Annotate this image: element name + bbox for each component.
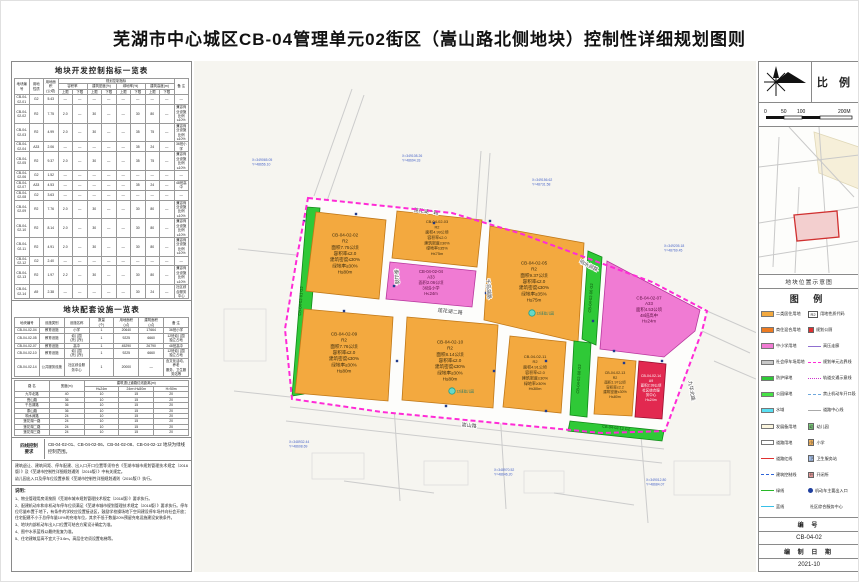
table-cell: R2 xyxy=(29,105,44,124)
coordinate-label: Y=48769.45 xyxy=(664,248,682,252)
legend-swatch-icon-icon: 开 xyxy=(808,472,815,479)
table-cell: 30 xyxy=(131,237,146,256)
legend-label: 绿线 xyxy=(776,488,784,494)
table-cell: 7.75 xyxy=(44,105,59,124)
table-cell: — xyxy=(160,219,175,238)
coordinate-label: X=349205.18 xyxy=(664,244,684,248)
table-cell: 35 xyxy=(131,180,146,190)
table-cell: — xyxy=(174,171,189,181)
legend-swatch-code-icon: R2 xyxy=(808,311,818,318)
table-row: CB-04-02-08G23.63————————— xyxy=(15,190,189,200)
table-cell: 20000 xyxy=(114,358,139,377)
note-line: 5、住宅建筑层高不宜大于3.6m，高层住宅须设置电梯等。 xyxy=(15,536,188,542)
legend-label: 规划单元边界线 xyxy=(823,359,852,365)
table-cell: 4.91 xyxy=(44,237,59,256)
legend-label: 卫生服务站 xyxy=(816,456,836,462)
table-cell: — xyxy=(116,237,131,256)
legend-item: 开开闭所 xyxy=(808,467,857,483)
table-cell: CB-04-02-04 xyxy=(15,142,30,152)
four-lines-section: 四线控制 要求 CB-04-02-01、CB-04-02-06、CB-04-02… xyxy=(12,438,191,461)
kindergarten-marker-icon xyxy=(449,388,455,394)
table-cell: — xyxy=(102,171,117,181)
indicator-table: 地块编号用地 性质用地面积 (公顷)规划控制指标备 注容积率建筑密度(%)绿地率… xyxy=(14,78,189,299)
table-cell: 35 xyxy=(131,142,146,152)
table-cell: 24 xyxy=(145,285,160,299)
scale-bar: 0 50 100 200M xyxy=(762,106,856,124)
coordinate-label: Y=48694.33 xyxy=(402,158,420,162)
table-cell: — xyxy=(73,266,88,285)
legend-item: 道路中心线 xyxy=(808,402,857,418)
table-cell: 含文化活动、养老 服务、卫生服务站等 xyxy=(164,358,189,377)
sheet-number-label: 编 号 xyxy=(759,518,859,531)
table-cell: 30 xyxy=(87,200,102,219)
table-cell: 1 xyxy=(89,333,114,343)
table-cell: R2 xyxy=(29,152,44,171)
table-cell: G2 xyxy=(29,171,44,181)
table-cell: CB-04-02-14 xyxy=(15,358,40,377)
table-cell: 30 xyxy=(131,219,146,238)
table-cell: CB-04-02-07 xyxy=(15,343,40,348)
legend-item: 规划公厕 xyxy=(808,322,857,338)
note-line: 幼儿园出入口及停车位设置参照《芜湖市控制性详细规划通则（2016版）》执行。 xyxy=(15,476,188,482)
table-cell: — xyxy=(73,123,88,142)
table-cell: — xyxy=(58,95,73,105)
indicator-table-title: 地块开发控制指标一览表 xyxy=(14,65,189,76)
table-cell: 80 xyxy=(145,237,160,256)
table-cell: — xyxy=(102,123,117,142)
table-cell: 12班幼儿园 独立占地 xyxy=(164,348,189,358)
table-row: CB-04-02-10R28.142.0—30——3080—兼容商业设施比例≤1… xyxy=(15,219,189,238)
table-cell: 8.14 xyxy=(44,219,59,238)
table-cell: — xyxy=(102,256,117,266)
table-cell: — xyxy=(102,285,117,299)
table-cell: 80 xyxy=(145,200,160,219)
table-cell: CB-04-02-04 xyxy=(15,328,40,333)
table-row: CB-04-02-03R24.992.0—30——3575—兼容商业设施比例≤1… xyxy=(15,123,189,142)
legend-swatch-fill-icon xyxy=(761,360,774,366)
scale-bar-box: 0 50 100 200M xyxy=(758,103,859,127)
svg-text:100: 100 xyxy=(797,109,806,115)
road-access-tick xyxy=(489,220,491,222)
table-cell: — xyxy=(73,237,88,256)
note-line: 3、地块内部机动车出入口位置可结合方案设计确定为准。 xyxy=(15,522,188,528)
table-cell: 兼容商业设施比例≤10% xyxy=(174,152,189,171)
table-cell: — xyxy=(116,152,131,171)
facility-table: 地块编号设施类别设施名称数量 (个)用地面积 (㎡)建筑面积 (㎡)备 注CB-… xyxy=(14,317,189,377)
table-cell: 48班高中 xyxy=(174,180,189,190)
legend-swatch-dash-icon xyxy=(808,362,821,363)
table-cell: 75 xyxy=(145,152,160,171)
table-cell: 80 xyxy=(145,266,160,285)
table-cell: 30 xyxy=(131,266,146,285)
table-cell: CB-04-02-12 xyxy=(15,256,30,266)
note-line: 建筑退让、建筑间距、停车配建、出入口开口位置等须符合《芜湖市城市规划管理技术规定… xyxy=(15,463,188,475)
table-cell: — xyxy=(131,171,146,181)
table-cell: — xyxy=(73,190,88,200)
plan-map: 12班幼儿园12班幼儿园X=349065.05Y=48656.10X=34910… xyxy=(194,61,756,572)
table-cell: — xyxy=(160,142,175,152)
table-cell: — xyxy=(116,285,131,299)
table-cell: — xyxy=(131,190,146,200)
coordinate-label: X=349108.26 xyxy=(402,154,422,158)
table-cell: 15 xyxy=(119,430,154,435)
table-cell: — xyxy=(116,219,131,238)
table-cell: CB-04-02-11 xyxy=(15,237,30,256)
legend-item: 高压走廊 xyxy=(808,338,857,354)
coordinate-label: X=348970.52 xyxy=(494,468,514,472)
table-row: CB-04-02-06G21.52————————— xyxy=(15,171,189,181)
road-access-tick xyxy=(545,410,547,412)
table-row: CB-04-02-05教育设施幼儿园 (托儿所)19225666012班幼儿园 … xyxy=(15,333,189,343)
table-cell: — xyxy=(87,142,102,152)
coordinate-label: X=349156.62 xyxy=(532,178,552,182)
road-access-tick xyxy=(343,310,345,312)
road-access-tick xyxy=(613,350,615,352)
table-cell: 30 xyxy=(87,219,102,238)
legend-grid: 二类居住用地商住混合用地中小学用地社会停车场用地防护绿地公园绿地水域发展备用地道… xyxy=(759,306,859,517)
table-cell: R2 xyxy=(29,219,44,238)
legend-label: 禁止机动车开口段 xyxy=(823,391,856,397)
table-cell: A9 xyxy=(29,285,44,299)
table-cell: — xyxy=(102,190,117,200)
table-cell: 1.52 xyxy=(44,171,59,181)
table-cell: — xyxy=(116,142,131,152)
legend-item: 中小学用地 xyxy=(761,338,806,354)
legend-item: 二类居住用地 xyxy=(761,306,806,322)
legend-label: 机动车主要出入口 xyxy=(815,488,848,494)
table-cell: CB-04-02-09 xyxy=(15,200,30,219)
table-cell: — xyxy=(116,266,131,285)
table-cell: 2.06 xyxy=(44,142,59,152)
table-cell: 4.99 xyxy=(44,123,59,142)
location-map xyxy=(759,127,859,273)
table-header-cell: 地块编号 xyxy=(15,79,30,95)
table-row: CB-04-02-01G25.43————————— xyxy=(15,95,189,105)
legend-swatch-line-icon xyxy=(808,346,821,347)
table-row: CB-04-02-07A334.53—————3524—48班高中 xyxy=(15,180,189,190)
table-cell: G2 xyxy=(29,256,44,266)
legend-swatch-fill-icon xyxy=(761,392,774,398)
table-cell: — xyxy=(174,190,189,200)
legend-swatch-fill-icon xyxy=(761,408,774,414)
table-cell: 35 xyxy=(131,152,146,171)
coordinate-label: Y=48684.07 xyxy=(646,482,664,486)
legend-label: 道路中心线 xyxy=(823,407,843,413)
legend-label: 中小学用地 xyxy=(776,343,796,349)
table-cell: — xyxy=(145,171,160,181)
table-cell: 80 xyxy=(145,219,160,238)
road-access-tick xyxy=(493,370,495,372)
location-map-caption: 地块位置示意图 xyxy=(758,275,859,289)
table-cell: R2 xyxy=(29,123,44,142)
table-row: CB-04-02-12G22.40————————— xyxy=(15,256,189,266)
table-cell: — xyxy=(73,285,88,299)
road-name-label: 泰山路 xyxy=(392,269,400,285)
table-cell: — xyxy=(73,95,88,105)
sheet-number-box: 编 号 CB-04-02 编 制 日 期 2021-10 xyxy=(758,518,859,572)
table-cell: G2 xyxy=(29,95,44,105)
table-cell: — xyxy=(73,171,88,181)
table-cell: — xyxy=(116,95,131,105)
table-cell: 幼儿园 (托儿所) xyxy=(64,333,89,343)
coordinate-label: Y=48656.10 xyxy=(252,162,270,166)
table-cell: CB-04-02-10 xyxy=(15,348,40,358)
legend-swatch-icon-icon: 幼 xyxy=(808,423,815,430)
facility-table-title: 地块配套设施一览表 xyxy=(14,304,189,315)
legend-title: 图 例 xyxy=(759,292,859,305)
legend-item: 公园绿地 xyxy=(761,386,806,402)
table-cell: — xyxy=(139,358,164,377)
table-cell: — xyxy=(102,142,117,152)
legend-label: 规划公厕 xyxy=(816,327,832,333)
legend-label: 用地性质代码 xyxy=(820,311,845,317)
table-cell: A33 xyxy=(29,142,44,152)
legend-swatch-dash-icon xyxy=(761,474,774,475)
table-cell: — xyxy=(116,180,131,190)
table-cell: G2 xyxy=(29,190,44,200)
table-cell: 2.2 xyxy=(58,266,73,285)
table-cell: 兼容商业设施比例≤10% xyxy=(174,123,189,142)
table-cell: 社区综合服 务中心 xyxy=(64,358,89,377)
table-cell: — xyxy=(87,285,102,299)
legend-label: 公园绿地 xyxy=(776,391,792,397)
table: 地块编号设施类别设施名称数量 (个)用地面积 (㎡)建筑面积 (㎡)备 注CB-… xyxy=(14,317,189,377)
legend-swatch-line-icon xyxy=(761,490,774,491)
table-cell: — xyxy=(160,171,175,181)
table-cell: 30 xyxy=(131,200,146,219)
table-cell: 35 xyxy=(131,123,146,142)
table-cell: — xyxy=(73,219,88,238)
table-cell: CB-04-02-14 xyxy=(15,285,30,299)
table-cell: 9225 xyxy=(114,333,139,343)
table-header-cell: 地块编号 xyxy=(15,318,40,328)
legend-item: 商住混合用地 xyxy=(761,322,806,338)
table-cell: — xyxy=(58,142,73,152)
kindergarten-marker-icon xyxy=(529,310,535,316)
legend-label: 开闭所 xyxy=(816,472,828,478)
legend-label: 蓝线 xyxy=(776,504,784,510)
legend-item: 社会停车场用地 xyxy=(761,354,806,370)
legend-item: 规划单元边界线 xyxy=(808,354,857,370)
table-header-cell: 路 名 xyxy=(15,381,50,392)
legend-label: 商住混合用地 xyxy=(776,327,801,333)
road-access-tick xyxy=(592,320,594,322)
svg-text:0: 0 xyxy=(764,109,767,115)
legend-swatch-line-icon xyxy=(761,506,774,507)
table-cell: — xyxy=(131,256,146,266)
table-cell: 30 xyxy=(131,105,146,124)
legend-item: 卫卫生服务站 xyxy=(808,451,857,467)
table-header-cell: 备 注 xyxy=(174,79,189,95)
legend-label: 防护绿地 xyxy=(776,375,792,381)
table-cell: 24 xyxy=(145,142,160,152)
note-block-b: 说明： 1、物业管理用房须按照《芜湖市城市规划管理技术规定（2016版）》要求执… xyxy=(12,486,191,545)
legend-item: 防护绿地 xyxy=(761,370,806,386)
table-cell: — xyxy=(73,200,88,219)
table-header-cell: 用地 性质 xyxy=(29,79,44,95)
road-access-tick xyxy=(445,405,447,407)
table-cell: CB-04-02-10 xyxy=(15,219,30,238)
table-cell: — xyxy=(145,256,160,266)
compass-rose-icon xyxy=(762,64,808,100)
svg-text:200M: 200M xyxy=(838,109,851,115)
table-cell: 1 xyxy=(89,348,114,358)
parcel xyxy=(295,309,393,401)
table-cell: 24 xyxy=(49,430,84,435)
table-cell: 兼容商业设施比例≤10% xyxy=(174,219,189,238)
note-line: 2、配建机动车和非机动车停车位须满足《芜湖市城市规划管理技术规定（2016版）》… xyxy=(15,503,188,521)
legend-label: 小学 xyxy=(816,440,824,446)
legend-item: 机动车主要出入口 xyxy=(808,483,857,499)
table-cell: 7.76 xyxy=(44,200,59,219)
location-map-box xyxy=(758,127,859,275)
table-cell: CB-04-02-02 xyxy=(15,105,30,124)
kindergarten-marker-label: 12班幼儿园 xyxy=(457,389,475,394)
table-cell: 兼容商业设施比例≤10% xyxy=(174,237,189,256)
table-row: CB-04-02-14公共服务设施社区综合服 务中心120000—含文化活动、养… xyxy=(15,358,189,377)
table-cell: — xyxy=(160,180,175,190)
legend-item: 发展备用地 xyxy=(761,419,806,435)
table-cell: 75 xyxy=(145,123,160,142)
table-cell: — xyxy=(58,256,73,266)
right-panel: 比 例 0 50 100 200M xyxy=(758,61,859,572)
four-lines-label: 四线控制 要求 xyxy=(14,439,45,459)
table-cell: R2 xyxy=(29,237,44,256)
table-cell: — xyxy=(102,237,117,256)
table-cell: 30 xyxy=(87,123,102,142)
table-cell: — xyxy=(116,190,131,200)
table-header-cell: 设施名称 xyxy=(64,318,89,328)
legend-swatch-outline-icon xyxy=(761,440,774,446)
table: 路 名宽度(m)建筑退让道路红线距离(m)H≤24m24m<H≤50mH>50m… xyxy=(14,380,189,435)
table-cell: 9.37 xyxy=(44,152,59,171)
table-cell: 2.0 xyxy=(58,123,73,142)
coordinate-label: X=349012.80 xyxy=(646,478,666,482)
coordinate-label: X=348932.44 xyxy=(289,440,309,444)
table-cell: — xyxy=(116,256,131,266)
legend-item: 水域 xyxy=(761,402,806,418)
road-setback-table: 路 名宽度(m)建筑退让道路红线距离(m)H≤24m24m<H≤50mH>50m… xyxy=(14,380,189,435)
table-cell: — xyxy=(87,180,102,190)
legend-swatch-fill-icon xyxy=(761,343,774,349)
legend-label: 二类居住用地 xyxy=(776,311,801,317)
table-cell: 4.53 xyxy=(44,180,59,190)
coordinate-label: Y=48608.69 xyxy=(289,444,307,448)
table-cell: 9225 xyxy=(114,348,139,358)
road-table-section: 路 名宽度(m)建筑退让道路红线距离(m)H≤24m24m<H≤50mH>50m… xyxy=(12,379,191,437)
legend-box: 图 例 二类居住用地商住混合用地中小学用地社会停车场用地防护绿地公园绿地水域发展… xyxy=(758,289,859,518)
facility-table-section: 地块配套设施一览表 地块编号设施类别设施名称数量 (个)用地面积 (㎡)建筑面积… xyxy=(12,301,191,379)
table-row: CB-04-02-02R27.752.0—30——3080—兼容商业设施比例≤1… xyxy=(15,105,189,124)
coordinate-label: Y=48731.58 xyxy=(532,182,550,186)
table-cell: — xyxy=(145,95,160,105)
table-cell: 兼容商业设施比例≤10% xyxy=(174,105,189,124)
sheet-date-value: 2021-10 xyxy=(759,558,859,572)
coordinate-label: Y=48646.20 xyxy=(494,472,512,476)
table-cell: 30 xyxy=(87,152,102,171)
table-cell: CB-04-02-13 xyxy=(15,266,30,285)
legend-item: 蓝线 xyxy=(761,499,806,515)
svg-text:50: 50 xyxy=(781,109,787,115)
legend-item: 禁止机动车开口段 xyxy=(808,386,857,402)
table-cell: 30 xyxy=(87,105,102,124)
table-cell: — xyxy=(102,219,117,238)
legend-item: 道路用地 xyxy=(761,435,806,451)
table-cell: — xyxy=(116,171,131,181)
table-cell: CB-04-02-07 xyxy=(15,180,30,190)
table-cell: 幼儿园 (托儿所) xyxy=(64,348,89,358)
table-cell: — xyxy=(116,123,131,142)
table-cell: — xyxy=(87,256,102,266)
table-header-cell: 设施类别 xyxy=(39,318,64,328)
table-cell: — xyxy=(160,256,175,266)
table-cell: 6660 xyxy=(139,333,164,343)
table-cell: — xyxy=(102,105,117,124)
sheet-number-value: CB-04-02 xyxy=(759,531,859,545)
legend-label: 轨道交通示意线 xyxy=(823,375,852,381)
legend-label: 幼儿园 xyxy=(816,424,828,430)
table-cell: 2.0 xyxy=(58,200,73,219)
table-header-cell: 备 注 xyxy=(164,318,189,328)
table-cell: 12班幼儿园 独立占地 xyxy=(164,333,189,343)
table-cell: 2.38 xyxy=(44,285,59,299)
table-cell: — xyxy=(160,237,175,256)
legend-item: 轨道交通示意线 xyxy=(808,370,857,386)
table-cell: — xyxy=(116,105,131,124)
legend-item: 幼幼儿园 xyxy=(808,419,857,435)
kindergarten-marker-label: 12班幼儿园 xyxy=(537,311,555,316)
table-cell: CB-04-02-01 xyxy=(15,95,30,105)
table-cell: — xyxy=(160,123,175,142)
legend-swatch-fill-icon xyxy=(761,327,774,333)
table-header-cell: 数量 (个) xyxy=(89,318,114,328)
table-cell: 30 xyxy=(131,285,146,299)
plan-map-container: 12班幼儿园12班幼儿园X=349065.05Y=48656.10X=34910… xyxy=(194,61,756,572)
table-cell: — xyxy=(102,95,117,105)
notes-title: 说明： xyxy=(15,488,188,495)
table-cell: — xyxy=(73,256,88,266)
legend-item: 社区综合服务中心 xyxy=(808,499,857,515)
four-lines-text: CB-04-02-01、CB-04-02-06、CB-04-02-08、CB-0… xyxy=(45,439,189,459)
table-cell: 1 xyxy=(89,358,114,377)
table-cell: CB-04-02-05 xyxy=(15,152,30,171)
table-cell: 教育设施 xyxy=(39,348,64,358)
table-cell: — xyxy=(160,152,175,171)
table-cell: — xyxy=(160,190,175,200)
table-cell: CB-04-02-03 xyxy=(15,123,30,142)
compass-scale-box: 比 例 xyxy=(758,61,859,103)
left-panel: 地块开发控制指标一览表 地块编号用地 性质用地面积 (公顷)规划控制指标备 注容… xyxy=(11,61,192,572)
table-cell: 兼容商业设施比例≤10% xyxy=(174,266,189,285)
table-cell: — xyxy=(102,180,117,190)
table: 地块编号用地 性质用地面积 (公顷)规划控制指标备 注容积率建筑密度(%)绿地率… xyxy=(14,78,189,299)
legend-label: 水域 xyxy=(776,407,784,413)
legend-item: R2用地性质代码 xyxy=(808,306,857,322)
road-access-tick xyxy=(396,360,398,362)
legend-item: 道路红线 xyxy=(761,451,806,467)
table-cell: A33 xyxy=(29,180,44,190)
table-row: CB-04-02-09R27.762.0—30——3080—兼容商业设施比例≤1… xyxy=(15,200,189,219)
road-access-tick xyxy=(355,213,357,215)
table-cell: — xyxy=(160,266,175,285)
table-cell: 2.0 xyxy=(58,152,73,171)
table-cell: — xyxy=(131,95,146,105)
legend-swatch-sq-icon xyxy=(808,327,814,333)
legend-label: 社区综合服务中心 xyxy=(810,504,843,510)
table-cell: — xyxy=(174,256,189,266)
table-row: CB-04-02-10教育设施幼儿园 (托儿所)19225666012班幼儿园 … xyxy=(15,348,189,358)
plan-sheet: 芜湖市中心城区CB-04管理单元02街区（嵩山路北侧地块）控制性详细规划图则 地… xyxy=(0,0,859,582)
